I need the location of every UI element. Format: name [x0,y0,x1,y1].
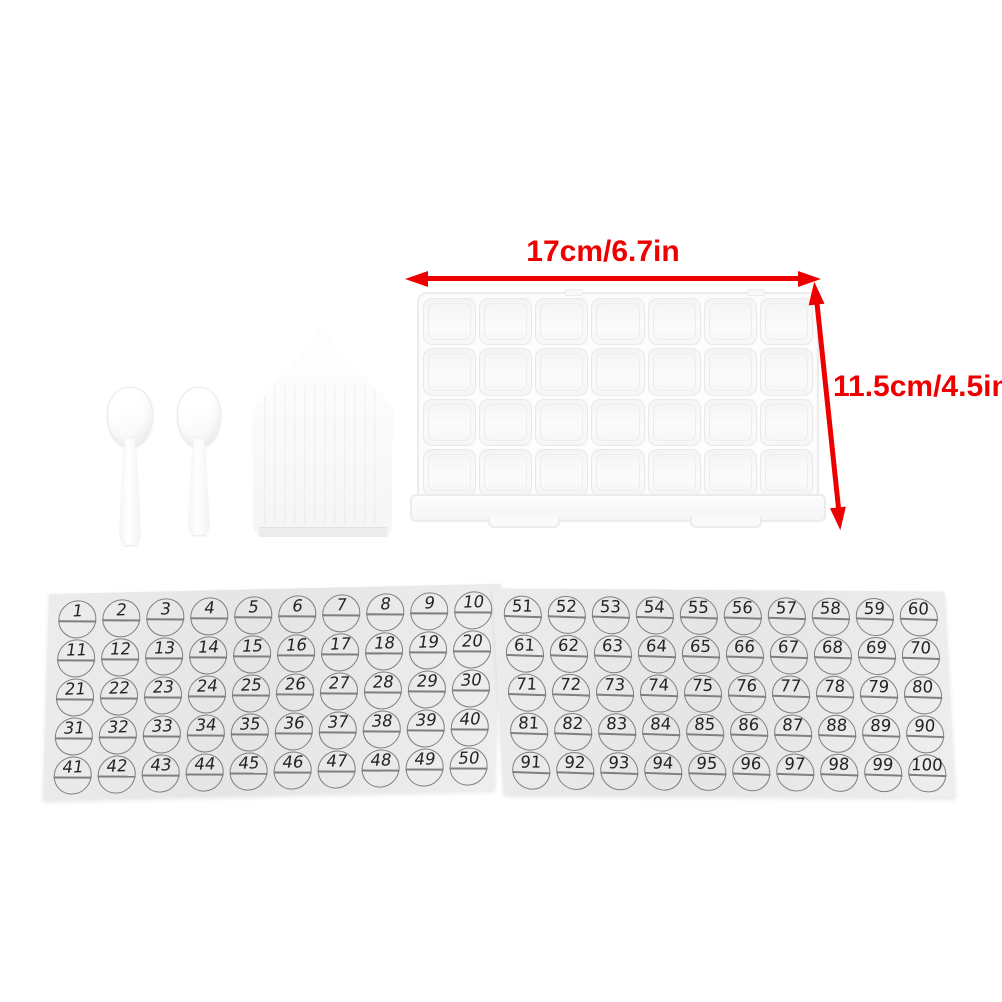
sticker-number: 7 [322,596,361,615]
sticker-number: 21 [56,680,95,699]
storage-box [417,292,819,530]
spoon-handle [119,439,141,545]
lid-hinge-notch [747,289,765,296]
number-sticker: 22 [99,677,138,716]
number-sticker: 2 [102,599,141,638]
box-compartment [423,298,476,345]
sticker-number: 49 [405,750,444,769]
sticker-number: 100 [908,756,945,774]
sticker-number: 64 [638,637,675,655]
number-sticker: 77 [771,675,811,713]
box-compartment [704,298,757,345]
sticker-number: 1 [58,602,97,621]
number-sticker: 13 [145,637,184,676]
number-sticker: 53 [591,596,631,634]
number-sticker: 3 [146,598,185,637]
number-sticker: 58 [811,598,851,636]
number-sticker: 94 [643,752,683,790]
sticker-number: 13 [145,639,184,658]
number-sticker: 62 [549,635,589,673]
sticker-number: 28 [364,673,403,692]
number-sticker: 31 [54,717,93,756]
width-dimension-arrow [427,276,799,281]
sticker-number: 63 [594,637,631,655]
product-photo: 17cm/6.7in 11.5cm/4.5in 1 2 3 4 [0,0,1002,1002]
number-sticker: 57 [767,597,807,635]
lid-hinge-notch [565,289,583,296]
sticker-number: 55 [680,599,717,617]
sticker-number: 60 [900,600,937,618]
number-sticker: 35 [230,713,269,752]
box-compartment [479,399,532,446]
box-compartment [535,348,588,395]
sticker-number: 81 [510,715,547,733]
box-compartments [423,298,813,496]
storage-box-base [410,494,826,522]
sticker-number: 57 [768,599,805,617]
number-sticker: 36 [274,712,313,751]
box-latch [690,517,762,528]
sticker-number: 58 [812,600,849,618]
sticker-number: 19 [409,633,448,652]
number-sticker: 76 [727,675,767,713]
box-compartment [648,449,701,496]
number-sticker: 86 [729,714,769,752]
white-scoop-spoon-1 [107,387,153,545]
number-sticker: 14 [189,636,228,675]
sticker-number: 87 [774,716,811,734]
drill-tray [252,327,393,537]
number-sticker: 44 [185,753,224,792]
number-sticker: 50 [449,747,488,786]
sticker-number: 15 [233,637,272,656]
sticker-number: 88 [818,717,855,735]
number-sticker: 29 [407,670,446,709]
number-sticker: 92 [555,752,595,790]
sticker-number: 44 [186,755,225,774]
box-compartment [423,348,476,395]
number-sticker: 19 [409,631,448,670]
number-sticker: 72 [551,674,591,712]
tray-ridges [264,385,381,523]
number-sticker: 23 [143,676,182,715]
number-sticker: 49 [405,748,444,787]
number-sticker: 27 [319,672,358,711]
height-dimension-label: 11.5cm/4.5in [833,370,1002,404]
number-sticker: 34 [186,714,225,753]
sticker-number: 89 [862,717,899,735]
number-sticker: 60 [899,598,939,636]
box-compartment [591,348,644,395]
sticker-number: 18 [365,634,404,653]
sticker-number: 90 [906,717,943,735]
sticker-number: 86 [730,716,767,734]
number-sticker: 15 [233,635,272,674]
sticker-number: 94 [644,754,681,772]
number-sticker: 93 [599,752,639,790]
sticker-number: 16 [277,636,316,655]
number-sticker: 90 [905,715,945,753]
sticker-number: 53 [592,598,629,616]
box-compartment [760,399,813,446]
number-sticker: 4 [190,597,229,636]
box-compartment [479,348,532,395]
sticker-number: 29 [408,672,447,691]
sticker-number: 43 [142,756,181,775]
number-sticker: 39 [406,709,445,748]
box-compartment [760,298,813,345]
sticker-sheet-51-100: 51 52 53 54 55 56 [492,588,955,797]
sticker-number: 71 [508,676,545,694]
sticker-number: 33 [143,717,182,736]
number-sticker: 25 [231,674,270,713]
box-compartment [479,298,532,345]
sticker-number: 61 [506,636,543,654]
sticker-number: 12 [101,640,140,659]
number-sticker: 43 [141,754,180,793]
sticker-number: 36 [275,714,314,733]
sticker-number: 99 [864,756,901,774]
sticker-number: 24 [188,677,227,696]
box-compartment [423,449,476,496]
sticker-number: 3 [146,600,185,619]
number-sticker: 32 [98,716,137,755]
number-sticker: 61 [505,634,545,672]
sticker-number: 96 [732,755,769,773]
number-sticker: 74 [639,674,679,712]
number-sticker: 65 [681,636,721,674]
number-sticker: 7 [322,594,361,633]
number-sticker: 16 [277,634,316,673]
sticker-number: 47 [318,752,357,771]
sticker-number: 62 [550,637,587,655]
sticker-number: 75 [684,677,721,695]
sticker-sheet-1-50: 1 2 3 4 5 6 [43,584,501,800]
number-sticker: 5 [234,596,273,635]
number-sticker: 30 [451,669,490,708]
box-compartment [648,348,701,395]
number-sticker: 47 [317,750,356,789]
sticker-number: 50 [449,749,488,768]
number-sticker: 56 [723,597,763,635]
sticker-number: 65 [682,638,719,656]
sticker-number: 80 [904,678,941,696]
sticker-number: 8 [366,595,405,614]
sticker-number: 72 [552,676,589,694]
number-sticker: 41 [53,756,92,795]
box-compartment [423,399,476,446]
sticker-number: 26 [276,675,315,694]
number-sticker: 18 [365,632,404,671]
number-sticker: 97 [775,753,815,791]
number-sticker: 99 [863,754,903,792]
white-scoop-spoon-2 [177,387,221,535]
sticker-number: 35 [231,715,270,734]
number-sticker: 87 [773,714,813,752]
spoon-bowl [107,387,153,447]
number-sticker: 12 [101,638,140,677]
sticker-number: 84 [642,715,679,733]
number-sticker: 89 [861,715,901,753]
sticker-number: 69 [858,639,895,657]
number-sticker: 52 [547,596,587,634]
width-dimension-label: 17cm/6.7in [423,235,783,269]
number-sticker: 37 [318,711,357,750]
number-sticker: 70 [901,637,941,675]
number-sticker: 66 [725,636,765,674]
sticker-number: 70 [902,639,939,657]
number-sticker: 21 [55,678,94,717]
number-sticker: 48 [361,749,400,788]
number-sticker: 78 [815,676,855,714]
number-sticker: 64 [637,635,677,673]
sticker-number: 22 [100,679,139,698]
sticker-number: 91 [512,754,549,772]
sticker-number: 27 [320,674,359,693]
sticker-number: 39 [407,711,446,730]
sticker-number: 85 [686,716,723,734]
box-compartment [535,399,588,446]
number-sticker: 54 [635,596,675,634]
number-sticker: 79 [859,676,899,714]
number-sticker: 84 [641,713,681,751]
sticker-number: 78 [816,678,853,696]
number-sticker: 75 [683,675,723,713]
number-sticker: 11 [57,639,96,678]
number-sticker: 6 [278,595,317,634]
sticker-number: 10 [454,593,493,612]
spoon-bowl [177,387,221,447]
sticker-number: 56 [724,599,761,617]
number-sticker: 69 [857,637,897,675]
number-sticker: 33 [142,715,181,754]
box-compartment [760,449,813,496]
number-sticker: 82 [553,713,593,751]
box-compartment [479,449,532,496]
number-sticker: 91 [511,752,551,790]
number-sticker: 71 [507,673,547,711]
number-sticker: 26 [275,673,314,712]
sticker-number: 54 [636,598,673,616]
box-compartment [648,399,701,446]
sticker-number: 51 [504,597,541,615]
box-compartment [704,348,757,395]
sticker-number: 6 [278,597,317,616]
sticker-number: 20 [453,632,492,651]
number-sticker: 24 [187,675,226,714]
number-sticker: 8 [366,593,405,632]
sticker-number: 40 [451,710,490,729]
sticker-number: 76 [728,677,765,695]
sticker-number: 68 [814,639,851,657]
sticker-number: 37 [319,713,358,732]
number-sticker: 51 [503,595,543,633]
sticker-number: 92 [556,754,593,772]
box-compartment [591,298,644,345]
sticker-number: 11 [57,641,96,660]
number-sticker: 10 [454,591,493,630]
box-latch [488,517,560,528]
number-sticker: 83 [597,713,637,751]
sticker-number: 95 [688,755,725,773]
number-sticker: 67 [769,636,809,674]
sticker-number: 31 [55,719,94,738]
sticker-number: 74 [640,676,677,694]
sticker-number: 42 [98,757,137,776]
sticker-number: 30 [452,671,491,690]
tray-bottom-lip [259,527,387,537]
sticker-number: 38 [363,712,402,731]
box-compartment [704,449,757,496]
number-sticker: 81 [509,713,549,751]
sticker-number: 98 [820,756,857,774]
box-compartment [591,449,644,496]
box-compartment [535,449,588,496]
number-sticker: 55 [679,597,719,635]
number-sticker: 85 [685,714,725,752]
number-sticker: 9 [410,592,449,631]
number-sticker: 59 [855,598,895,636]
box-compartment [648,298,701,345]
sticker-number: 93 [600,754,637,772]
number-sticker: 80 [903,676,943,714]
sticker-number: 66 [726,638,763,656]
sticker-number: 32 [99,718,138,737]
number-sticker: 42 [97,755,136,794]
number-sticker: 68 [813,637,853,675]
sticker-number: 77 [772,677,809,695]
sticker-number: 5 [234,598,273,617]
sticker-number: 48 [361,751,400,770]
sticker-number: 14 [189,638,228,657]
box-compartment [760,348,813,395]
sticker-number: 45 [230,754,269,773]
sticker-number: 23 [144,678,183,697]
sticker-number: 52 [548,598,585,616]
sticker-number: 97 [776,755,813,773]
sticker-number: 82 [554,715,591,733]
sticker-number: 4 [190,599,229,618]
number-sticker: 100 [907,754,947,792]
number-sticker: 95 [687,753,727,791]
number-sticker: 46 [273,751,312,790]
number-sticker: 1 [58,600,97,639]
box-compartment [535,298,588,345]
sticker-number: 79 [860,678,897,696]
sticker-number: 2 [102,601,141,620]
sticker-number: 25 [232,676,271,695]
sticker-number: 67 [770,638,807,656]
spoon-handle [188,439,210,535]
number-sticker: 98 [819,754,859,792]
sticker-number: 46 [274,753,313,772]
number-sticker: 96 [731,753,771,791]
number-sticker: 20 [453,630,492,669]
box-compartment [591,399,644,446]
number-sticker: 28 [363,671,402,710]
sticker-number: 34 [187,716,226,735]
number-sticker: 17 [321,633,360,672]
number-sticker: 38 [362,710,401,749]
box-compartment [704,399,757,446]
number-sticker: 73 [595,674,635,712]
sticker-number: 83 [598,715,635,733]
sticker-number: 9 [410,594,449,613]
number-sticker: 88 [817,715,857,753]
sticker-number: 73 [596,676,633,694]
sticker-number: 59 [856,600,893,618]
number-sticker: 40 [450,708,489,747]
number-sticker: 63 [593,635,633,673]
sticker-number: 17 [321,635,360,654]
sticker-number: 41 [54,758,93,777]
number-sticker: 45 [229,752,268,791]
storage-box-lid [417,292,819,502]
